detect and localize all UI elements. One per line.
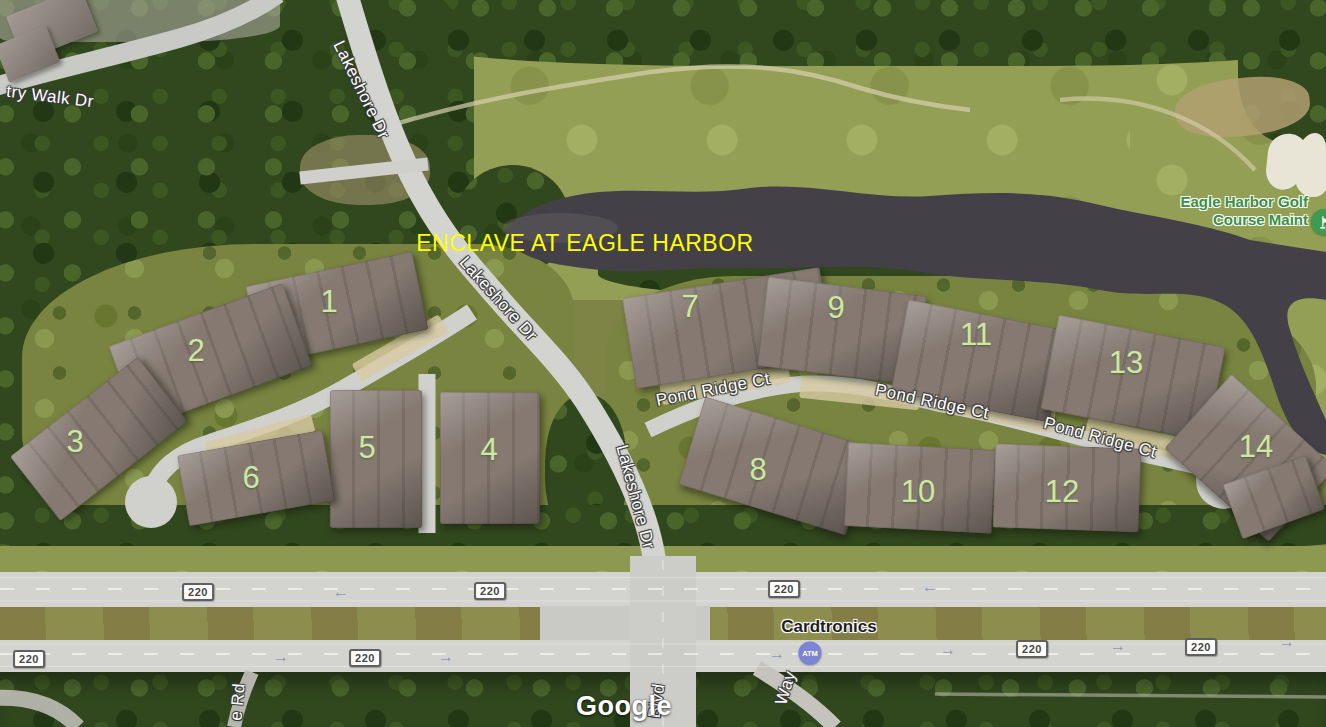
lane-arrow-right: → (940, 642, 956, 658)
route-220-shield: 220 (1016, 640, 1048, 658)
building-number-1: 1 (320, 284, 337, 320)
lane-arrow-right: → (1110, 638, 1126, 654)
lane-arrow-right: → (769, 646, 785, 662)
building-number-4: 4 (480, 432, 497, 468)
golf-label-line2: Course Maint (1180, 211, 1308, 229)
building-number-8: 8 (749, 452, 766, 488)
lane-arrow-right: → (273, 649, 289, 665)
lane-arrow-left: ← (333, 584, 349, 600)
golf-flag-glyph (1317, 215, 1326, 229)
lane-arrow-left: ← (922, 579, 938, 595)
building-number-2: 2 (187, 333, 204, 369)
route-220-shield: 220 (182, 583, 214, 601)
building-number-5: 5 (358, 430, 375, 466)
building-number-3: 3 (66, 424, 83, 460)
route-220-shield: 220 (1185, 638, 1217, 656)
golf-course-poi-label[interactable]: Eagle Harbor Golf Course Maint (1180, 193, 1308, 229)
sand-bunker (1266, 133, 1326, 197)
building-number-13: 13 (1109, 345, 1143, 381)
community-name-overlay: ENCLAVE AT EAGLE HARBOR (416, 230, 753, 257)
route-220-shield: 220 (768, 580, 800, 598)
atm-poi-icon[interactable]: ATM (799, 642, 822, 665)
satellite-map[interactable]: 220 220 220 220 220 220 220 ← ← → → → → … (0, 0, 1326, 727)
golf-cart-path-2 (1060, 99, 1255, 170)
cardtronics-poi-label[interactable]: Cardtronics (781, 617, 876, 637)
lane-arrow-right: → (1279, 634, 1295, 650)
building-number-11: 11 (960, 317, 992, 353)
route-220-shield: 220 (349, 649, 381, 667)
building-number-9: 9 (827, 290, 844, 326)
building-number-10: 10 (901, 474, 935, 510)
google-logo[interactable]: Google (576, 691, 672, 722)
route-220-shield: 220 (474, 582, 506, 600)
route-220-shield: 220 (13, 650, 45, 668)
corner-stub-road (0, 698, 78, 727)
building-number-7: 7 (681, 289, 698, 325)
lane-arrow-right: → (438, 649, 454, 665)
atm-icon-text: ATM (802, 649, 818, 658)
building-5 (330, 390, 422, 528)
south-sidewalk (935, 694, 1326, 697)
golf-cart-path (382, 66, 970, 128)
golf-label-line1: Eagle Harbor Golf (1180, 193, 1308, 211)
e-rd-label: e Rd (226, 682, 249, 721)
building-number-6: 6 (242, 460, 259, 496)
building-number-14: 14 (1239, 429, 1273, 465)
left-cul-de-sac (125, 476, 177, 528)
building-number-12: 12 (1045, 474, 1079, 510)
